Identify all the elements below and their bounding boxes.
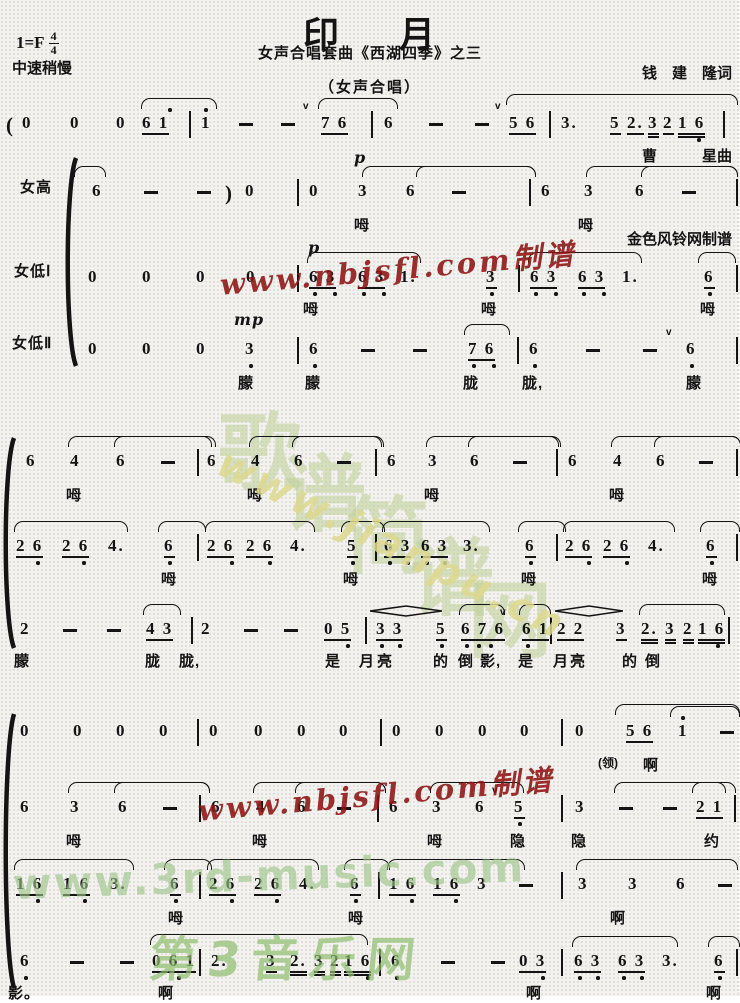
lyric-text: (领) bbox=[598, 754, 618, 771]
rest-token: 0 bbox=[392, 722, 403, 741]
lyric-text: 胧, bbox=[179, 650, 200, 671]
note-token: 1 6 bbox=[63, 875, 90, 896]
octave-dot bbox=[24, 976, 28, 980]
lyric-text: 啊 bbox=[526, 982, 542, 1003]
slur-arc bbox=[114, 782, 210, 793]
slur-arc bbox=[341, 521, 385, 532]
octave-dot bbox=[587, 561, 591, 565]
note-token: 3 bbox=[584, 182, 595, 201]
slur-arc bbox=[563, 521, 675, 532]
dash-note bbox=[519, 884, 533, 887]
note-token: 6 bbox=[116, 452, 127, 471]
system-brace bbox=[62, 156, 80, 368]
rest-token: 0 bbox=[196, 268, 207, 287]
rest-token: 0 bbox=[520, 722, 531, 741]
octave-dot bbox=[533, 364, 537, 368]
barline bbox=[556, 534, 558, 561]
note-token: 6 3 bbox=[530, 268, 557, 289]
note-token: 6 3 bbox=[421, 537, 448, 558]
lyric-text: 胧 bbox=[463, 372, 479, 393]
note-token: 2 bbox=[683, 620, 694, 641]
dash-note bbox=[120, 961, 134, 964]
note-token: 1 bbox=[678, 722, 689, 741]
lyric-text: 呣 bbox=[702, 568, 718, 589]
note-token: 3 bbox=[432, 798, 443, 817]
octave-dot bbox=[410, 899, 414, 903]
lyric-text: 呣 bbox=[427, 830, 443, 851]
note-token: 1. bbox=[400, 268, 417, 287]
barline bbox=[297, 337, 299, 364]
note-token: 4. bbox=[108, 537, 125, 556]
octave-dot bbox=[582, 292, 586, 296]
octave-dot bbox=[366, 976, 370, 980]
slur-arc bbox=[506, 94, 738, 105]
dynamic-mark: mp bbox=[234, 310, 264, 329]
slur-arc bbox=[639, 604, 725, 615]
note-token: 4 bbox=[70, 452, 81, 471]
rest-token: 0 bbox=[309, 182, 320, 201]
note-token: 3. bbox=[110, 875, 127, 894]
note-token: 4 bbox=[256, 798, 267, 817]
dash-note bbox=[699, 461, 713, 464]
lyric-text: 月 bbox=[553, 650, 569, 671]
system-brace bbox=[0, 712, 18, 990]
octave-dot bbox=[716, 644, 720, 648]
note-token: 3. bbox=[662, 952, 679, 971]
note-token: 2 bbox=[663, 114, 674, 135]
note-token: 3 bbox=[477, 875, 488, 894]
slur-arc bbox=[318, 98, 398, 109]
lyric-text: 呣 bbox=[247, 484, 263, 505]
octave-dot bbox=[490, 292, 494, 296]
slur-arc bbox=[576, 859, 738, 870]
lyric-text: 胧 bbox=[145, 650, 161, 671]
dash-note bbox=[163, 807, 177, 810]
lyric-text: 呣 bbox=[521, 568, 537, 589]
note-token: 5 bbox=[610, 114, 621, 135]
barline bbox=[736, 949, 738, 976]
octave-dot bbox=[518, 822, 522, 826]
barline bbox=[297, 179, 299, 206]
dash-note bbox=[441, 961, 455, 964]
note-token: 7 6 bbox=[321, 114, 348, 135]
note-token: 3 bbox=[245, 340, 256, 359]
octave-dot bbox=[204, 108, 208, 112]
rest-token: 0 bbox=[245, 182, 256, 201]
note-token: 5 bbox=[514, 798, 525, 819]
barline bbox=[556, 449, 558, 476]
note-token: 6 bbox=[635, 182, 646, 201]
note-token: 2. bbox=[290, 952, 307, 973]
octave-dot bbox=[554, 292, 558, 296]
note-token: 2 6 bbox=[207, 537, 234, 558]
octave-dot bbox=[526, 644, 530, 648]
octave-dot bbox=[477, 644, 481, 648]
lyric-text: 胧, bbox=[522, 372, 543, 393]
barline bbox=[561, 719, 563, 746]
note-token: 0 3 bbox=[519, 952, 546, 973]
dash-note bbox=[663, 807, 677, 810]
rest-token: 0 bbox=[435, 722, 446, 741]
octave-dot bbox=[380, 644, 384, 648]
note-token: 2 bbox=[330, 952, 341, 973]
octave-dot bbox=[346, 644, 350, 648]
barline bbox=[189, 111, 191, 138]
slur-arc bbox=[692, 782, 726, 793]
slur-arc bbox=[344, 859, 390, 870]
note-token: 3 bbox=[486, 268, 497, 289]
lyric-text: 啊 bbox=[706, 982, 722, 1003]
dash-note bbox=[718, 884, 732, 887]
note-token: 6 bbox=[294, 452, 305, 471]
dash-note bbox=[244, 629, 258, 632]
note-token: 5 bbox=[436, 620, 447, 641]
barline bbox=[197, 719, 199, 746]
lyric-text: 朦 bbox=[305, 372, 321, 393]
note-token: 6 bbox=[207, 452, 218, 471]
note-token: 6 bbox=[389, 798, 400, 817]
lyric-text: 倒 bbox=[645, 650, 661, 671]
barline bbox=[378, 872, 380, 899]
note-token: 6 bbox=[714, 952, 725, 973]
rest-token: 0 bbox=[88, 268, 99, 287]
note-token: 6 1 bbox=[142, 114, 169, 135]
rest-token: 0 bbox=[73, 722, 84, 741]
lyric-text: 呣 bbox=[252, 830, 268, 851]
octave-dot bbox=[268, 561, 272, 565]
note-token: 3. bbox=[463, 537, 480, 556]
voice-label: 女低Ⅱ bbox=[12, 332, 52, 353]
note-token: 6 bbox=[706, 537, 717, 558]
slur-arc bbox=[700, 521, 740, 532]
note-token: 5 6 bbox=[626, 722, 653, 743]
slur-arc bbox=[698, 252, 736, 263]
note-token: 6 bbox=[470, 452, 481, 471]
dash-note bbox=[413, 349, 427, 352]
slur-arc bbox=[519, 604, 551, 615]
octave-dot bbox=[174, 899, 178, 903]
note-token: 3 bbox=[575, 798, 586, 817]
rest-token: 0 bbox=[70, 114, 81, 133]
note-token: 2. bbox=[211, 952, 228, 971]
barline bbox=[518, 265, 520, 292]
octave-dot bbox=[388, 561, 392, 565]
lyric-text: 倒 bbox=[458, 650, 474, 671]
slur-arc bbox=[528, 252, 642, 263]
slur-arc bbox=[641, 166, 738, 177]
note-token: 6 3 bbox=[384, 537, 411, 558]
lyric-text: 是 bbox=[518, 650, 534, 671]
note-token: 6 bbox=[406, 182, 417, 201]
dash-note bbox=[63, 629, 77, 632]
barline bbox=[191, 617, 193, 644]
rest-token: 0 bbox=[209, 722, 220, 741]
note-token: 3 bbox=[616, 620, 627, 641]
note-token: 6 bbox=[676, 875, 687, 894]
lyric-text: 呣 bbox=[343, 568, 359, 589]
lyric-text: 啊 bbox=[643, 754, 659, 775]
lyric-text: 朦 bbox=[238, 372, 254, 393]
slur-arc bbox=[164, 859, 212, 870]
barline bbox=[380, 719, 382, 746]
note-token: 5 bbox=[347, 537, 358, 558]
lyric-text: 的 bbox=[622, 650, 638, 671]
octave-dot bbox=[249, 364, 253, 368]
barline bbox=[736, 534, 738, 561]
notation-area: (0006 11v7 66v5 63.52.321 6女高女低Ⅰ女低Ⅱ6)003… bbox=[0, 0, 740, 996]
barline bbox=[550, 617, 552, 644]
barline bbox=[734, 795, 736, 822]
dash-note bbox=[586, 349, 600, 352]
dash-note bbox=[239, 123, 253, 126]
octave-dot bbox=[425, 561, 429, 565]
barline bbox=[517, 337, 519, 364]
note-token: 4. bbox=[648, 537, 665, 556]
slur-arc bbox=[150, 934, 368, 945]
slur-arc bbox=[292, 436, 382, 447]
barline bbox=[375, 449, 377, 476]
rest-token: 0 bbox=[478, 722, 489, 741]
octave-dot bbox=[541, 976, 545, 980]
barline bbox=[377, 795, 379, 822]
note-token: 6 bbox=[704, 268, 715, 289]
slur-arc bbox=[382, 521, 490, 532]
dash-note bbox=[337, 807, 351, 810]
barline bbox=[736, 265, 738, 292]
note-token: 2 bbox=[201, 620, 212, 639]
dash-note bbox=[161, 461, 175, 464]
octave-dot bbox=[362, 292, 366, 296]
dash-note bbox=[619, 807, 633, 810]
slur-arc bbox=[464, 324, 510, 335]
note-token: 4 bbox=[251, 452, 262, 471]
octave-dot bbox=[472, 364, 476, 368]
note-token: 6 bbox=[211, 798, 222, 817]
dash-note bbox=[284, 629, 298, 632]
octave-dot bbox=[382, 292, 386, 296]
lyric-text: 朦 bbox=[14, 650, 30, 671]
barline bbox=[297, 265, 299, 292]
note-token: 1. bbox=[622, 268, 639, 287]
barline bbox=[199, 872, 201, 899]
lyric-text: 呣 bbox=[700, 298, 716, 319]
slur-arc bbox=[387, 859, 525, 870]
lyric-text: 啊 bbox=[610, 907, 626, 928]
note-token: 6 bbox=[568, 452, 579, 471]
note-token: 2 6 bbox=[254, 875, 281, 896]
slur-arc bbox=[654, 436, 740, 447]
barline bbox=[549, 111, 551, 138]
note-token: 3 bbox=[358, 182, 369, 201]
dash-note bbox=[682, 191, 696, 194]
dash-note bbox=[70, 961, 84, 964]
note-token: 3 bbox=[628, 875, 639, 894]
octave-dot bbox=[230, 561, 234, 565]
note-token: 6 1 bbox=[522, 620, 549, 641]
note-token: 2 6 bbox=[62, 537, 89, 558]
note-token: 7 6 bbox=[468, 340, 495, 361]
note-token: 2 6 bbox=[16, 537, 43, 558]
lyric-text: 呣 bbox=[424, 484, 440, 505]
note-token: 6 3 bbox=[309, 268, 336, 289]
dash-note bbox=[720, 731, 734, 734]
note-token: 1 6 bbox=[344, 952, 371, 973]
octave-dot bbox=[625, 561, 629, 565]
note-token: 6 bbox=[387, 452, 398, 471]
octave-dot bbox=[333, 292, 337, 296]
slur-arc bbox=[518, 521, 566, 532]
note-token: 2 2 bbox=[557, 620, 584, 641]
note-token: 2 6 bbox=[565, 537, 592, 558]
note-token: 6 bbox=[391, 952, 402, 971]
barline bbox=[736, 449, 738, 476]
note-token: 6 bbox=[350, 875, 361, 896]
slur-arc bbox=[143, 604, 181, 615]
octave-dot bbox=[602, 292, 606, 296]
barline bbox=[736, 337, 738, 364]
octave-dot bbox=[443, 561, 447, 565]
slur-arc bbox=[468, 436, 559, 447]
note-token: 3 bbox=[578, 875, 589, 894]
lyric-text: 亮 bbox=[570, 650, 586, 671]
slur-arc bbox=[459, 604, 505, 615]
note-token: 6 3 bbox=[578, 268, 605, 289]
rest-token: 0 bbox=[246, 268, 257, 287]
note-token: 3 bbox=[70, 798, 81, 817]
note-token: 6 bbox=[525, 537, 536, 558]
octave-dot bbox=[82, 561, 86, 565]
octave-dot bbox=[622, 976, 626, 980]
barline bbox=[199, 795, 201, 822]
note-token: 6 bbox=[92, 182, 103, 201]
barline bbox=[371, 111, 373, 138]
lyric-text: 呣 bbox=[481, 298, 497, 319]
note-token: 1 6 bbox=[433, 875, 460, 896]
octave-dot bbox=[529, 561, 533, 565]
note-token: 1 bbox=[201, 114, 212, 133]
octave-dot bbox=[454, 899, 458, 903]
octave-dot bbox=[395, 976, 399, 980]
rest-token: 0 bbox=[142, 268, 153, 287]
lyric-text: 呣 bbox=[66, 830, 82, 851]
barline bbox=[529, 179, 531, 206]
octave-dot bbox=[177, 976, 181, 980]
octave-dot bbox=[596, 976, 600, 980]
rest-token: 0 bbox=[116, 114, 127, 133]
note-token: 0 6 1 bbox=[152, 952, 196, 973]
lyric-text: 隐 bbox=[571, 830, 587, 851]
note-token: 2. bbox=[627, 114, 644, 135]
rest-token: 0 bbox=[88, 340, 99, 359]
octave-dot bbox=[578, 976, 582, 980]
lyric-text: 是 bbox=[325, 650, 341, 671]
note-token: 4. bbox=[299, 875, 316, 894]
dash-note bbox=[337, 461, 351, 464]
note-token: 6 bbox=[656, 452, 667, 471]
note-token: 6 3 bbox=[618, 952, 645, 973]
dash-note bbox=[197, 191, 211, 194]
slur-arc bbox=[74, 166, 106, 177]
note-token: 5 6 bbox=[509, 114, 536, 135]
lyric-text: 亮 bbox=[377, 650, 393, 671]
rest-token: 0 bbox=[254, 722, 265, 741]
lyric-text: 呣 bbox=[354, 214, 370, 235]
rest-token: 0 bbox=[159, 722, 170, 741]
note-token: 6 7 6 bbox=[461, 620, 505, 641]
octave-dot bbox=[406, 561, 410, 565]
breath-mark: v bbox=[666, 327, 672, 338]
note-token: 6 bbox=[164, 537, 175, 558]
barline bbox=[723, 111, 725, 138]
note-token: 6 bbox=[20, 952, 31, 971]
slur-arc bbox=[670, 706, 740, 717]
note-token: 6 bbox=[170, 875, 181, 896]
note-token: 0 5 bbox=[324, 620, 351, 641]
note-token: 2 6 bbox=[603, 537, 630, 558]
lyric-text: 呣 bbox=[161, 568, 177, 589]
barline bbox=[379, 949, 381, 976]
note-token: ( bbox=[6, 114, 13, 137]
note-token: 6 bbox=[529, 340, 540, 359]
barline bbox=[561, 949, 563, 976]
slur-arc bbox=[207, 859, 319, 870]
note-token: 2 6 bbox=[209, 875, 236, 896]
slur-arc bbox=[14, 521, 128, 532]
octave-dot bbox=[313, 364, 317, 368]
octave-dot bbox=[398, 644, 402, 648]
slur-arc bbox=[14, 859, 134, 870]
lyric-text: 呣 bbox=[348, 907, 364, 928]
note-token: 6 3 bbox=[358, 268, 385, 289]
note-token: 3. bbox=[561, 114, 578, 133]
barline bbox=[365, 617, 367, 644]
note-token: 3 bbox=[314, 952, 325, 973]
breath-mark: v bbox=[303, 101, 309, 112]
dash-note bbox=[491, 961, 505, 964]
note-token: 6 bbox=[541, 182, 552, 201]
octave-dot bbox=[534, 292, 538, 296]
lyric-text: 呣 bbox=[609, 484, 625, 505]
dash-note bbox=[361, 349, 375, 352]
octave-dot bbox=[351, 561, 355, 565]
note-token: 4 3 bbox=[146, 620, 173, 641]
dash-note bbox=[452, 191, 466, 194]
octave-dot bbox=[465, 644, 469, 648]
lyric-text: 呣 bbox=[578, 214, 594, 235]
octave-dot bbox=[354, 899, 358, 903]
note-token: 2. bbox=[641, 620, 658, 641]
barline bbox=[728, 617, 730, 644]
slur-arc bbox=[295, 782, 386, 793]
dash-note bbox=[429, 123, 443, 126]
note-token: 6 bbox=[297, 798, 308, 817]
slur-arc bbox=[114, 436, 212, 447]
lyric-text: 影, bbox=[480, 650, 501, 671]
note-token: 6 bbox=[309, 340, 320, 359]
lyric-text: 朦 bbox=[686, 372, 702, 393]
note-token: 3 3 bbox=[376, 620, 403, 641]
lyric-text: 约 bbox=[704, 830, 720, 851]
note-token: 3 bbox=[665, 620, 676, 641]
octave-dot bbox=[168, 108, 172, 112]
octave-dot bbox=[489, 644, 493, 648]
octave-dot bbox=[230, 899, 234, 903]
note-token: 1 6 bbox=[389, 875, 416, 896]
slur-arc bbox=[430, 782, 524, 793]
dash-note bbox=[475, 123, 489, 126]
note-token: 6 bbox=[384, 114, 395, 133]
barline bbox=[561, 872, 563, 899]
